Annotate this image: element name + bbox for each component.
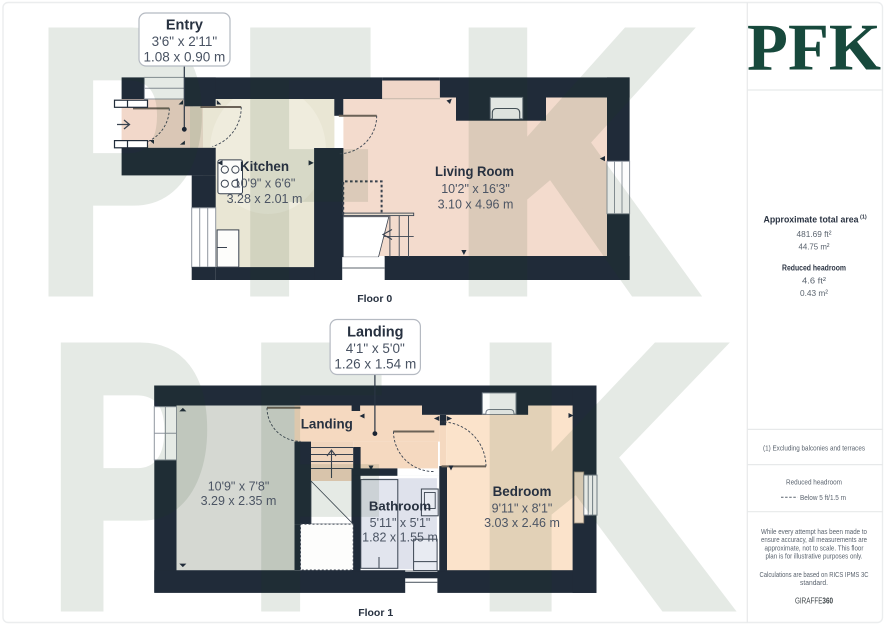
svg-text:Approximate total area: Approximate total area: [764, 215, 860, 225]
svg-text:3.28 x 2.01 m: 3.28 x 2.01 m: [227, 192, 303, 206]
svg-text:10'9" x 6'6": 10'9" x 6'6": [234, 177, 296, 191]
svg-text:44.75 m²: 44.75 m²: [799, 242, 830, 252]
svg-text:Landing: Landing: [301, 417, 353, 432]
svg-text:5'11" x 5'1": 5'11" x 5'1": [370, 516, 431, 530]
svg-text:PFK: PFK: [747, 11, 881, 85]
svg-text:3.10 x 4.96 m: 3.10 x 4.96 m: [438, 197, 514, 211]
svg-text:Entry: Entry: [166, 18, 203, 34]
svg-text:481.69 ft²: 481.69 ft²: [797, 229, 832, 239]
svg-text:GIRAFFE360: GIRAFFE360: [795, 596, 833, 606]
svg-text:1.08 x 0.90 m: 1.08 x 0.90 m: [143, 50, 225, 65]
svg-text:(1): (1): [860, 215, 867, 221]
svg-text:3.03 x 2.46 m: 3.03 x 2.46 m: [484, 516, 560, 530]
svg-text:K: K: [471, 268, 729, 627]
svg-text:Bedroom: Bedroom: [493, 484, 552, 499]
svg-text:P: P: [48, 268, 212, 627]
svg-text:3.29 x 2.35 m: 3.29 x 2.35 m: [201, 494, 277, 508]
svg-text:10'9" x 7'8": 10'9" x 7'8": [208, 480, 270, 494]
svg-text:4'1" x 5'0": 4'1" x 5'0": [346, 341, 405, 356]
svg-text:4.6 ft²: 4.6 ft²: [802, 276, 826, 286]
svg-text:Floor 0: Floor 0: [357, 293, 392, 305]
svg-text:Below 5 ft/1.5 m: Below 5 ft/1.5 m: [800, 493, 846, 502]
svg-text:Landing: Landing: [347, 325, 403, 341]
svg-text:0.43 m²: 0.43 m²: [800, 288, 828, 298]
svg-text:standard.: standard.: [800, 578, 828, 587]
svg-text:Reduced headroom: Reduced headroom: [786, 478, 842, 487]
svg-text:10'2" x 16'3": 10'2" x 16'3": [441, 182, 510, 196]
svg-text:1.82 x 1.55 m: 1.82 x 1.55 m: [362, 531, 438, 545]
svg-text:Living Room: Living Room: [435, 163, 514, 179]
svg-text:Floor 1: Floor 1: [358, 607, 393, 619]
svg-text:3'6" x 2'11": 3'6" x 2'11": [152, 34, 218, 49]
svg-text:Reduced headroom: Reduced headroom: [782, 263, 846, 273]
svg-text:(1) Excluding balconies and te: (1) Excluding balconies and terraces: [763, 444, 865, 453]
svg-text:Kitchen: Kitchen: [240, 159, 289, 174]
svg-text:plan is for illustrative purpo: plan is for illustrative purposes only.: [766, 552, 863, 561]
svg-text:Bathroom: Bathroom: [369, 499, 431, 514]
svg-text:1.26 x 1.54 m: 1.26 x 1.54 m: [334, 357, 416, 372]
svg-text:9'11" x 8'1": 9'11" x 8'1": [492, 502, 553, 516]
